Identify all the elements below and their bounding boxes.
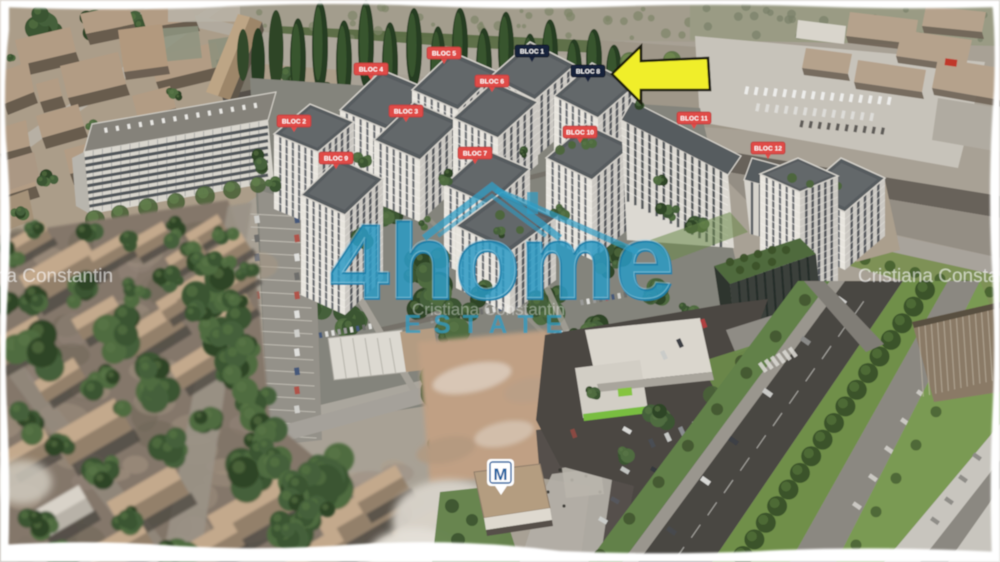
svg-text:BLOC 2: BLOC 2 <box>282 119 307 126</box>
svg-text:BLOC 3: BLOC 3 <box>394 109 419 116</box>
svg-text:Cristiana Constantin: Cristiana Constantin <box>0 266 113 287</box>
svg-text:Cristiana Constantin: Cristiana Constantin <box>858 266 1000 287</box>
svg-text:BLOC 8: BLOC 8 <box>576 69 601 76</box>
svg-text:BLOC 9: BLOC 9 <box>324 156 349 163</box>
svg-text:BLOC 10: BLOC 10 <box>566 130 594 137</box>
svg-text:BLOC 6: BLOC 6 <box>480 79 505 86</box>
svg-text:BLOC 11: BLOC 11 <box>680 116 708 123</box>
svg-text:BLOC 4: BLOC 4 <box>359 67 384 74</box>
svg-text:BLOC 5: BLOC 5 <box>432 51 457 58</box>
svg-text:BLOC 7: BLOC 7 <box>463 151 488 158</box>
svg-text:M: M <box>493 465 507 484</box>
svg-text:BLOC 1: BLOC 1 <box>520 49 545 56</box>
svg-text:BLOC 12: BLOC 12 <box>754 146 782 153</box>
svg-text:Cristiana Constantin: Cristiana Constantin <box>412 300 565 319</box>
